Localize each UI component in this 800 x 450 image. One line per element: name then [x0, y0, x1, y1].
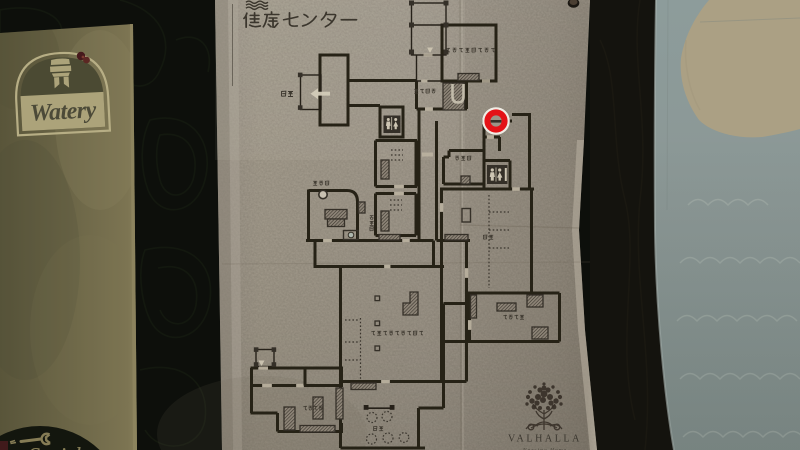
svg-text:Smith: Smith: [28, 444, 88, 450]
svg-text:VALHALLA: VALHALLA: [508, 434, 582, 445]
svg-text:Watery: Watery: [29, 97, 97, 126]
